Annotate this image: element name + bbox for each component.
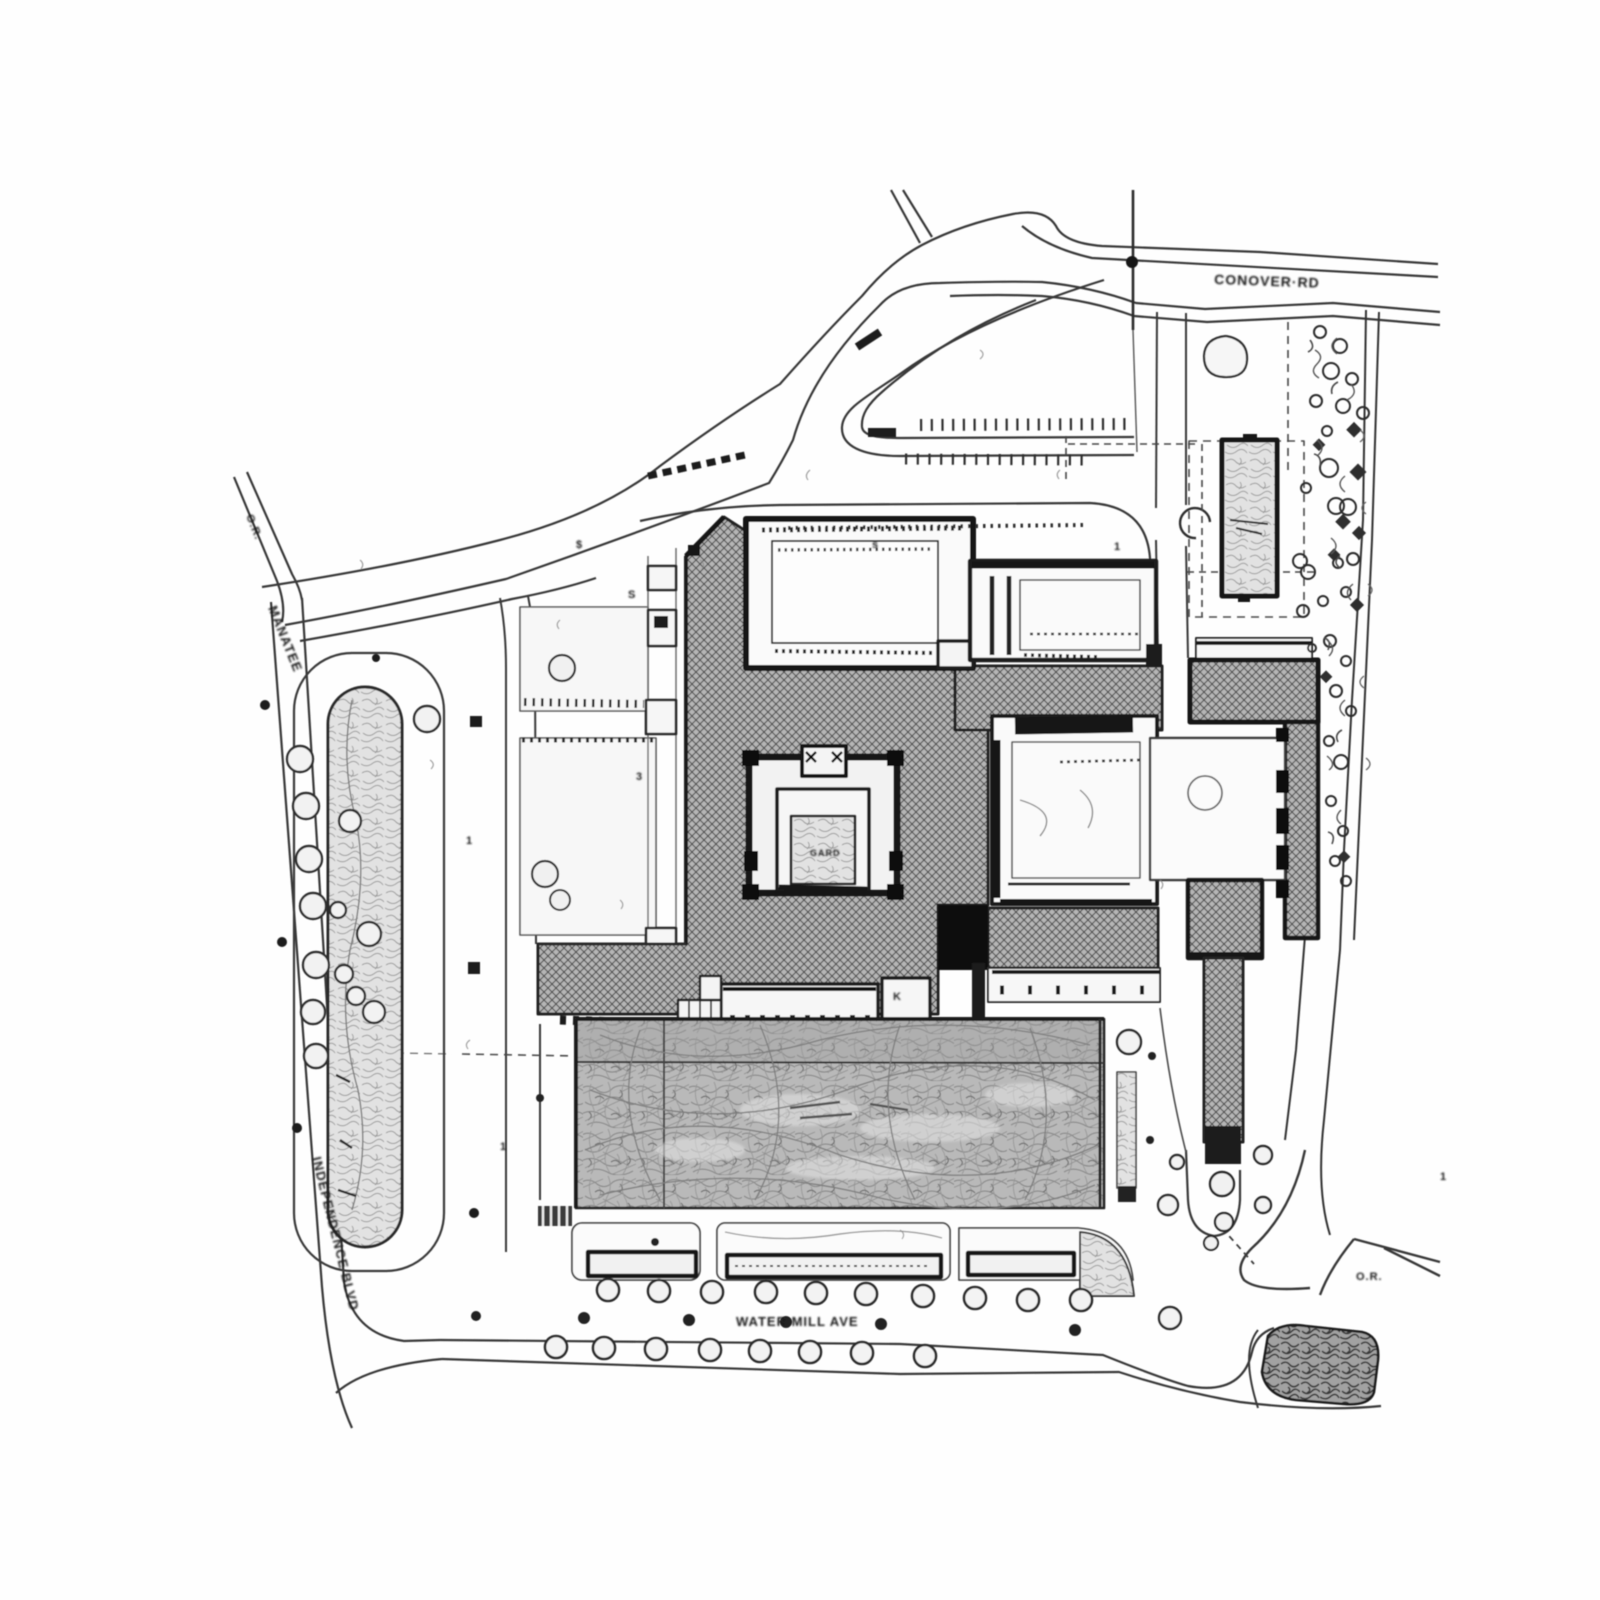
svg-text:s: s	[872, 539, 879, 551]
svg-text:1: 1	[466, 835, 473, 847]
svg-text:1: 1	[1440, 1171, 1447, 1183]
svg-text:$: $	[576, 539, 583, 551]
svg-text:1: 1	[1114, 541, 1121, 553]
svg-text:K: K	[893, 991, 902, 1003]
svg-text:3: 3	[636, 771, 643, 783]
svg-text:1: 1	[500, 1141, 507, 1153]
svg-text:GARD: GARD	[810, 848, 841, 858]
svg-text:S: S	[628, 589, 636, 601]
svg-text:WATER MILL AVE: WATER MILL AVE	[736, 1314, 859, 1329]
svg-text:O.R.: O.R.	[1356, 1271, 1383, 1283]
